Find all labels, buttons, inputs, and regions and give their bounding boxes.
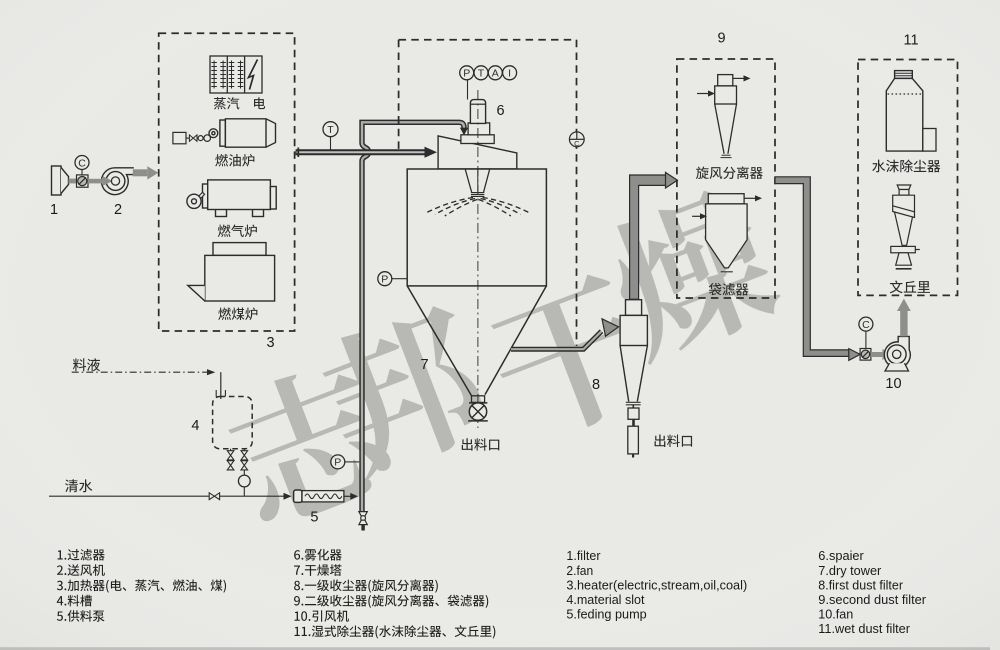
svg-text:9.second dust filter: 9.second dust filter [818,593,926,607]
svg-text:P: P [463,68,470,80]
svg-text:7.dry tower: 7.dry tower [818,564,881,578]
svg-text:C: C [574,139,580,148]
svg-text:11: 11 [903,33,918,49]
svg-text:8.first dust filter: 8.first dust filter [818,578,903,592]
svg-text:2.fan: 2.fan [566,564,593,578]
svg-text:P: P [381,273,388,285]
svg-text:I: I [508,68,511,80]
svg-text:C: C [862,319,870,331]
svg-text:6: 6 [496,103,504,119]
svg-text:11.wet dust filter: 11.wet dust filter [818,622,910,636]
svg-text:5.feding pump: 5.feding pump [566,608,646,622]
svg-text:9: 9 [717,31,725,47]
svg-text:10: 10 [885,376,901,392]
svg-text:T: T [327,124,334,136]
svg-text:1.filter: 1.filter [566,549,600,563]
svg-text:3.heater(electric,stream,oil,c: 3.heater(electric,stream,oil,coal) [566,578,747,592]
svg-text:1: 1 [50,202,58,218]
svg-text:3: 3 [266,335,274,351]
svg-text:T: T [478,68,485,80]
svg-text:5: 5 [310,510,318,526]
svg-text:10.fan: 10.fan [818,608,853,622]
svg-text:A: A [492,68,499,80]
svg-text:7: 7 [421,357,429,373]
svg-text:2: 2 [114,202,122,218]
svg-text:C: C [78,157,86,169]
svg-text:4: 4 [191,418,199,434]
svg-text:8: 8 [592,377,600,393]
svg-text:6.spaier: 6.spaier [818,549,864,563]
svg-text:4.material slot: 4.material slot [566,593,645,607]
svg-text:P: P [334,457,341,469]
